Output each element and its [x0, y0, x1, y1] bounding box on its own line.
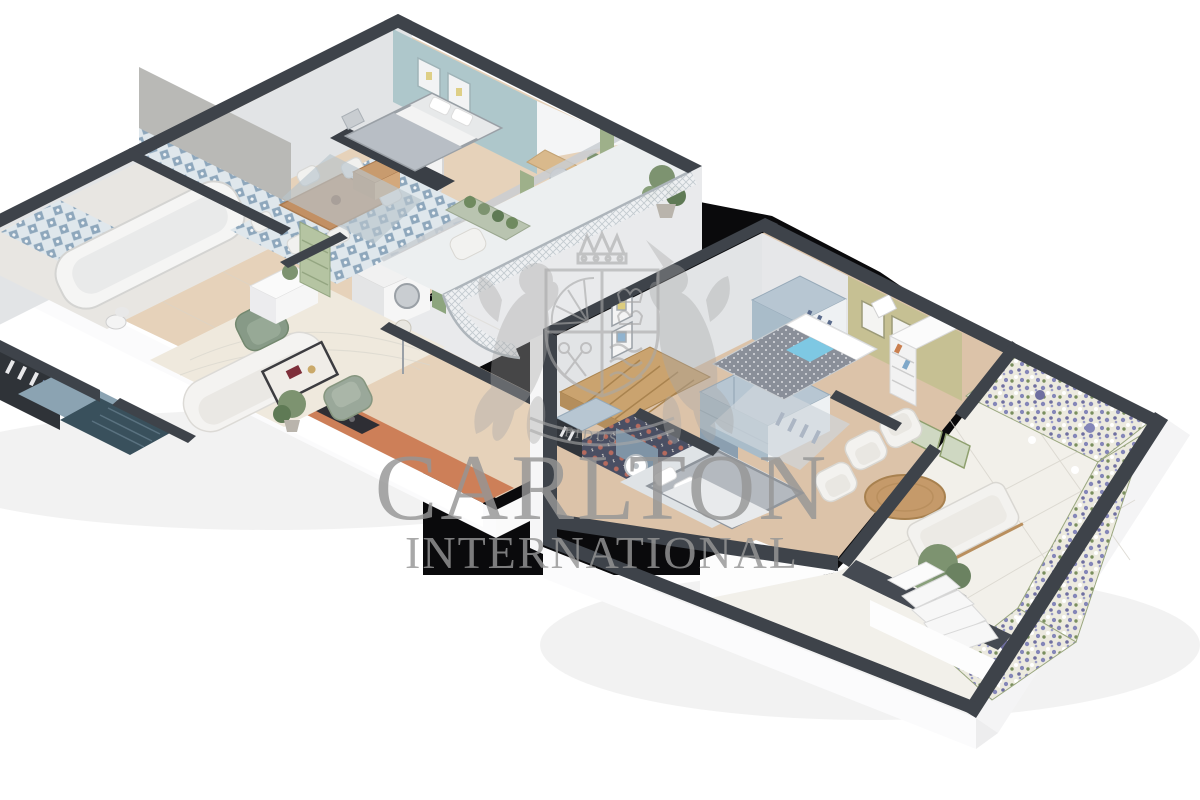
floorplan-screenshot: FIDUS CARLTON INTERNATIONAL [0, 0, 1200, 800]
watermark-brand-line1: CARLTON [375, 436, 830, 540]
floorplan-illustration: FIDUS CARLTON INTERNATIONAL [0, 0, 1200, 800]
watermark-brand-line2: INTERNATIONAL [405, 527, 799, 578]
